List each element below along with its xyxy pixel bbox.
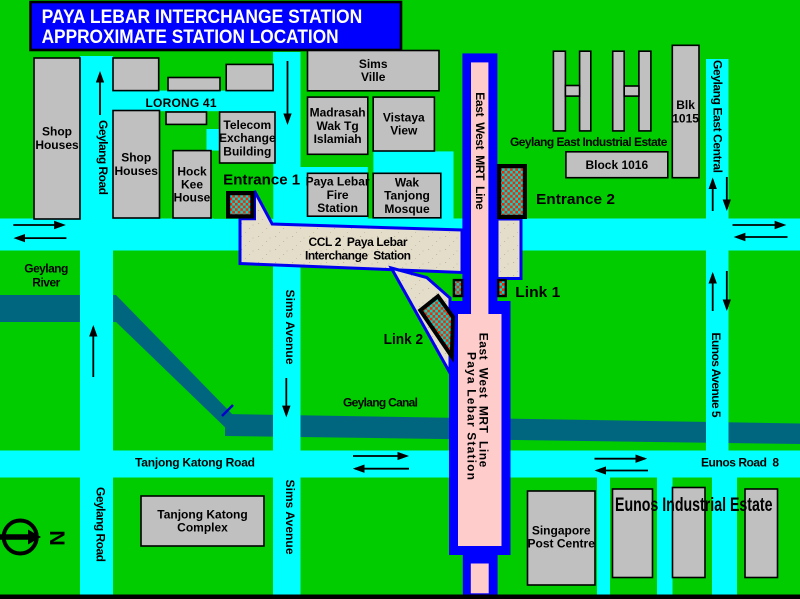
svg-text:Entrance 2: Entrance 2 [536,192,615,208]
svg-text:Station: Station [317,201,358,215]
svg-text:Geylang East Industrial Estate: Geylang East Industrial Estate [510,135,668,149]
svg-text:Block 1016: Block 1016 [585,158,648,172]
svg-text:Houses: Houses [115,164,159,178]
svg-text:Madrasah: Madrasah [310,106,366,120]
svg-text:Blk: Blk [676,98,695,112]
svg-text:Geylang Road: Geylang Road [94,487,108,562]
svg-text:Eunos Industrial Estate: Eunos Industrial Estate [615,495,773,516]
svg-text:Geylang East Central: Geylang East Central [711,60,725,173]
svg-text:Geylang: Geylang [24,262,68,276]
svg-text:Link 1: Link 1 [515,285,560,301]
svg-text:Sims Avenue: Sims Avenue [283,290,297,365]
svg-text:View: View [390,124,418,138]
svg-text:N: N [45,530,69,546]
svg-text:Kee: Kee [181,178,203,192]
svg-text:Fire: Fire [327,188,349,202]
svg-text:Complex: Complex [177,521,228,535]
svg-text:Hock: Hock [177,164,207,178]
svg-text:1015: 1015 [672,111,699,125]
svg-text:Islamiah: Islamiah [314,132,362,146]
svg-text:Wak Tg: Wak Tg [316,119,358,133]
svg-text:Paya Lebar Station: Paya Lebar Station [465,352,479,480]
svg-text:Paya Lebar: Paya Lebar [306,175,370,189]
svg-text:House: House [174,191,211,205]
svg-text:Tanjong: Tanjong [384,189,430,203]
svg-text:Mosque: Mosque [384,202,430,216]
svg-text:Singapore: Singapore [532,523,591,537]
svg-text:Sims Avenue: Sims Avenue [283,480,297,555]
svg-text:Tanjong Katong: Tanjong Katong [157,507,247,521]
svg-text:Wak: Wak [395,176,420,190]
svg-text:LORONG 41: LORONG 41 [146,96,217,110]
svg-text:CCL 2 Paya Lebar: CCL 2 Paya Lebar [309,235,408,249]
svg-text:Telecom: Telecom [223,118,271,132]
svg-text:Post Centre: Post Centre [528,537,596,551]
svg-text:Geylang Road: Geylang Road [96,120,110,195]
svg-text:Interchange Station: Interchange Station [305,249,411,263]
svg-text:Houses: Houses [35,138,79,152]
svg-text:Shop: Shop [121,151,151,165]
svg-text:Entrance 1: Entrance 1 [223,172,300,188]
svg-text:Eunos Road 8: Eunos Road 8 [701,456,779,470]
svg-text:Vistaya: Vistaya [383,110,425,124]
svg-text:Exchange: Exchange [219,131,276,145]
svg-text:Building: Building [223,144,271,158]
svg-text:East West MRT Line: East West MRT Line [473,92,487,210]
svg-text:Tanjong Katong Road: Tanjong Katong Road [135,456,255,470]
svg-text:Link 2: Link 2 [384,332,424,348]
svg-text:Sims: Sims [359,57,388,71]
svg-text:PAYA LEBAR INTERCHANGE STATION: PAYA LEBAR INTERCHANGE STATION [42,7,363,28]
svg-text:Shop: Shop [42,125,72,139]
svg-text:Geylang Canal: Geylang Canal [343,396,418,410]
svg-text:Eunos Avenue 5: Eunos Avenue 5 [709,333,723,418]
svg-text:APPROXIMATE STATION LOCATION: APPROXIMATE STATION LOCATION [42,27,339,48]
svg-text:River: River [32,276,60,290]
svg-text:Ville: Ville [361,70,386,84]
